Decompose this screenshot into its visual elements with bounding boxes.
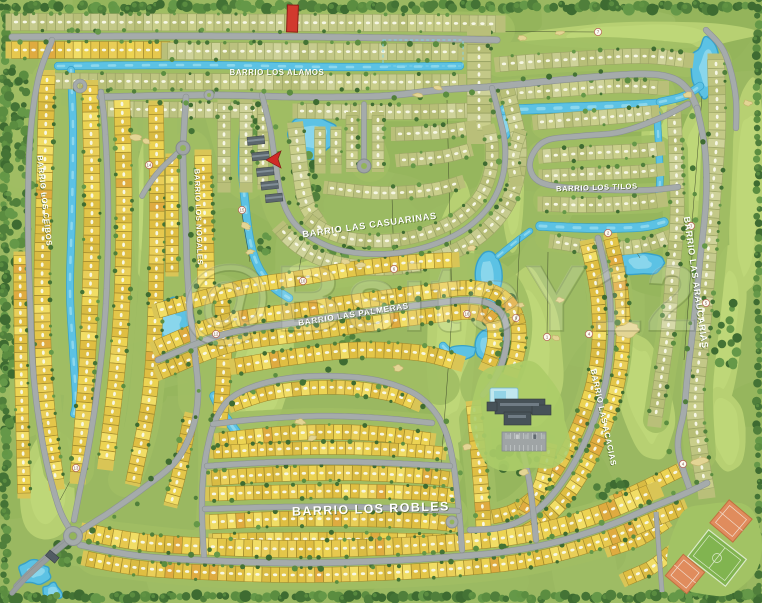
svg-text:@BsitoY12: @BsitoY12: [180, 245, 701, 350]
svg-text:BARRIO LOS ALAMOS: BARRIO LOS ALAMOS: [230, 68, 325, 77]
